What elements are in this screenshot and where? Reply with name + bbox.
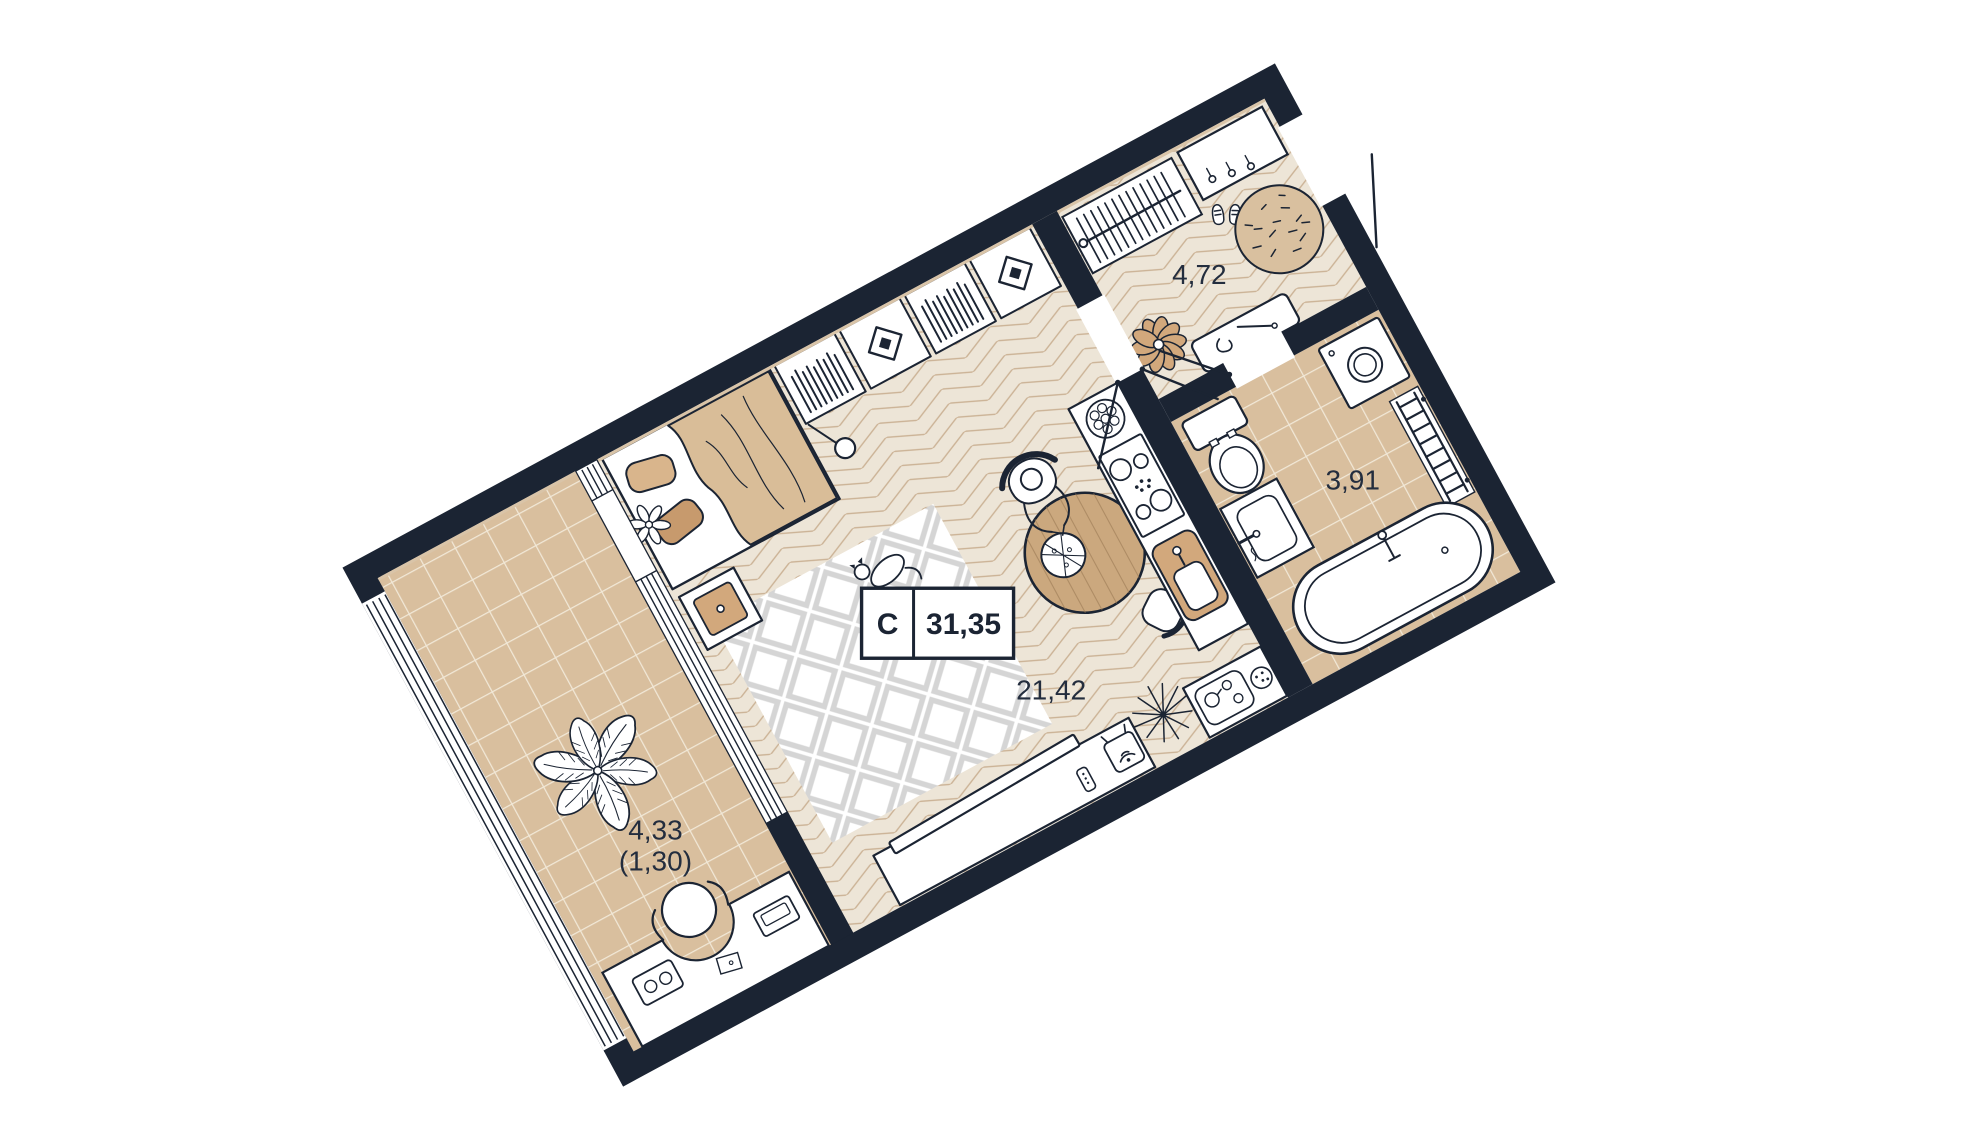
area-value: 3,91 <box>1325 465 1380 496</box>
area-value: 4,72 <box>1172 259 1227 290</box>
unit-info-box: С 31,35 <box>862 588 1014 658</box>
hallway-area-label: 4,72 <box>1172 259 1227 290</box>
area-value: 21,42 <box>1016 674 1086 705</box>
area-reduced-value: (1,30) <box>619 845 692 876</box>
balcony-area-label: 4,33 (1,30) <box>619 814 692 876</box>
art-icon <box>999 257 1031 289</box>
floor-plan: 21,42 4,72 3,91 4,33 (1,30) С 31,35 <box>0 0 1980 1143</box>
floor-plan-page: 21,42 4,72 3,91 4,33 (1,30) С 31,35 <box>0 0 1980 1143</box>
living-room-area-label: 21,42 <box>1016 674 1086 705</box>
unit-total-area: 31,35 <box>926 608 1001 641</box>
area-value: 4,33 <box>628 814 683 845</box>
unit-type-label: С <box>877 608 899 641</box>
bathroom-area-label: 3,91 <box>1325 465 1380 496</box>
art-icon <box>869 327 901 359</box>
